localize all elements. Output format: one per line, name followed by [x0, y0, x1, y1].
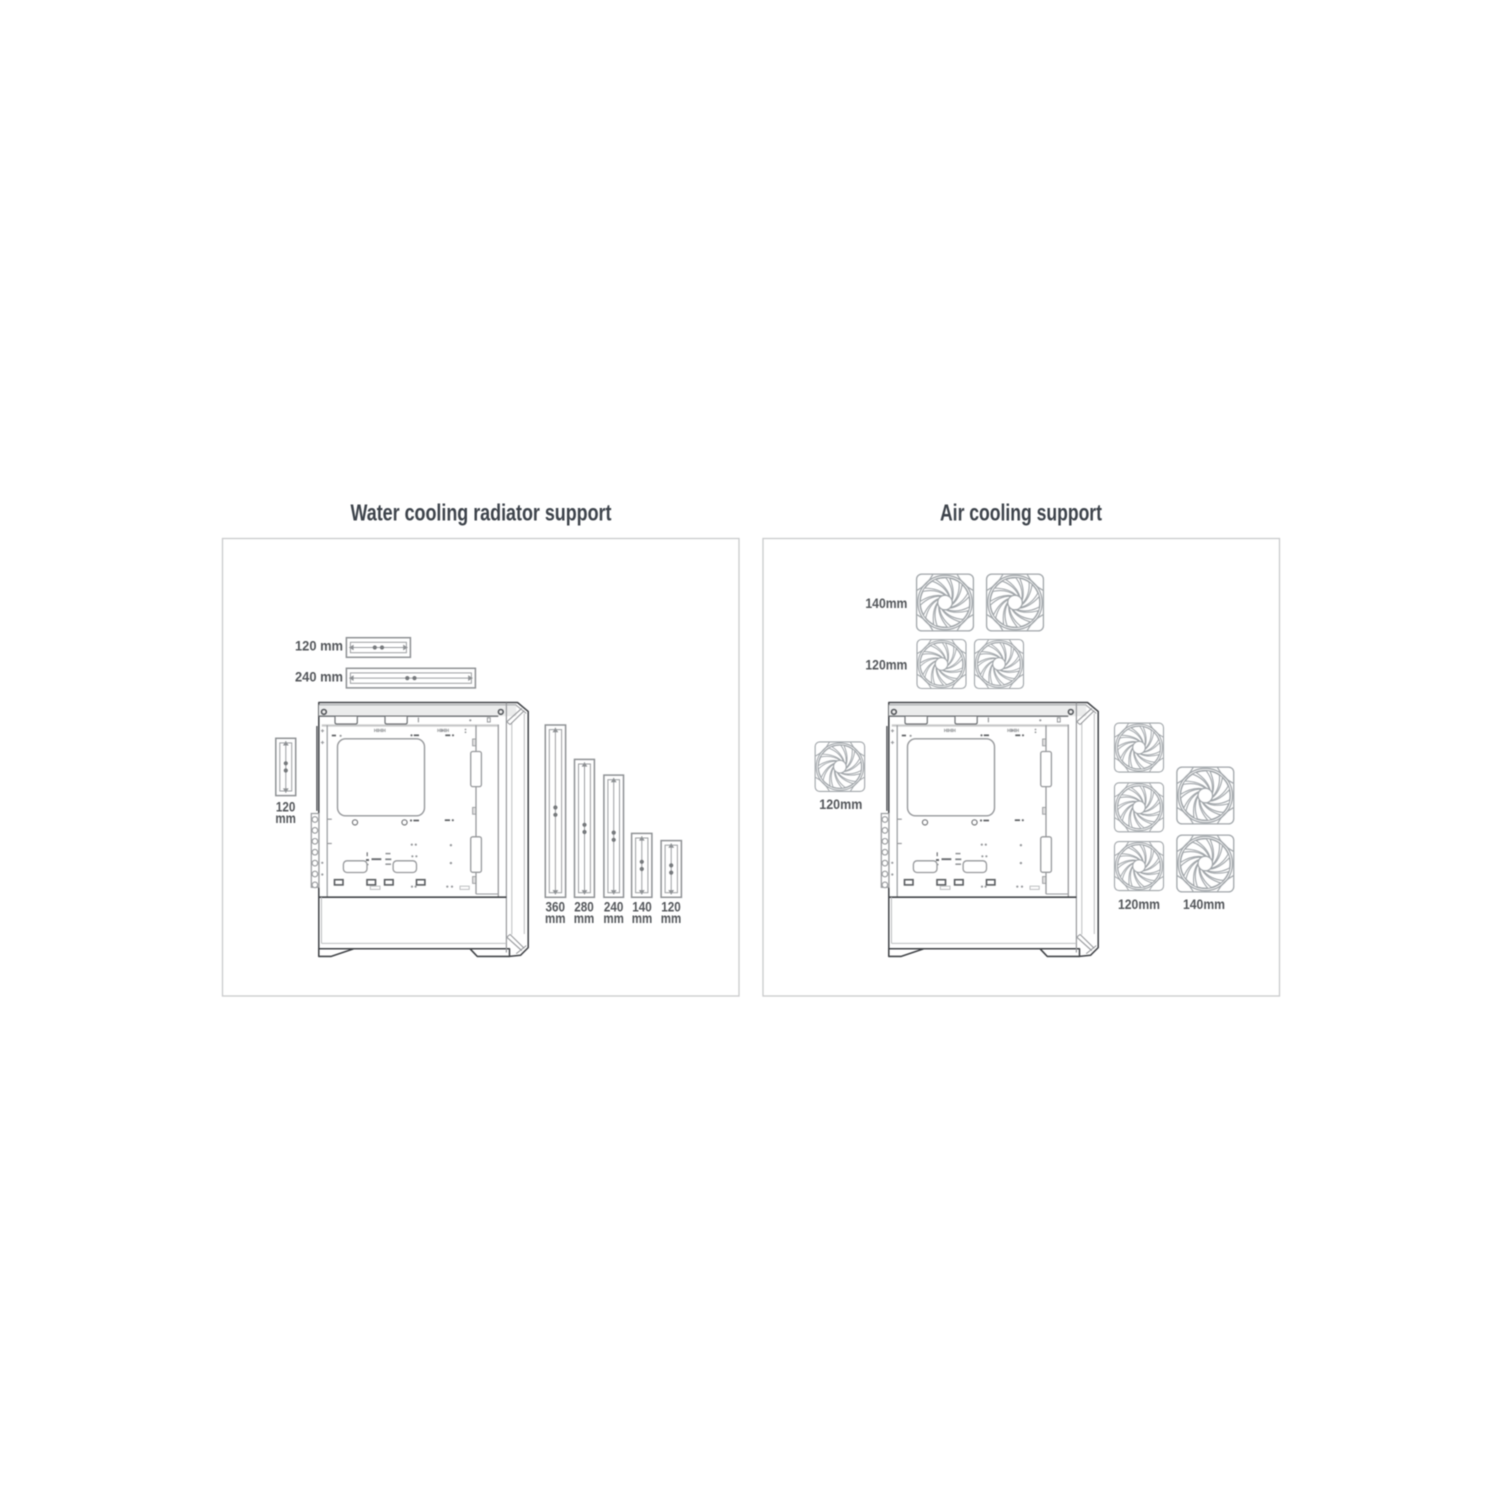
svg-text:mm: mm	[661, 911, 682, 926]
svg-text:120mm: 120mm	[819, 797, 862, 812]
svg-text:mm: mm	[545, 911, 566, 926]
svg-text:mm: mm	[574, 911, 595, 926]
svg-text:140mm: 140mm	[865, 596, 907, 611]
svg-text:240 mm: 240 mm	[295, 670, 343, 685]
svg-text:mm: mm	[603, 911, 624, 926]
svg-text:140mm: 140mm	[1183, 897, 1225, 912]
svg-text:mm: mm	[275, 811, 296, 826]
svg-text:120mm: 120mm	[1118, 897, 1160, 912]
svg-text:120mm: 120mm	[865, 658, 907, 673]
svg-text:120 mm: 120 mm	[295, 639, 343, 654]
svg-text:Air cooling support: Air cooling support	[940, 500, 1102, 526]
svg-text:Water cooling radiator support: Water cooling radiator support	[351, 500, 612, 526]
svg-text:mm: mm	[632, 911, 653, 926]
